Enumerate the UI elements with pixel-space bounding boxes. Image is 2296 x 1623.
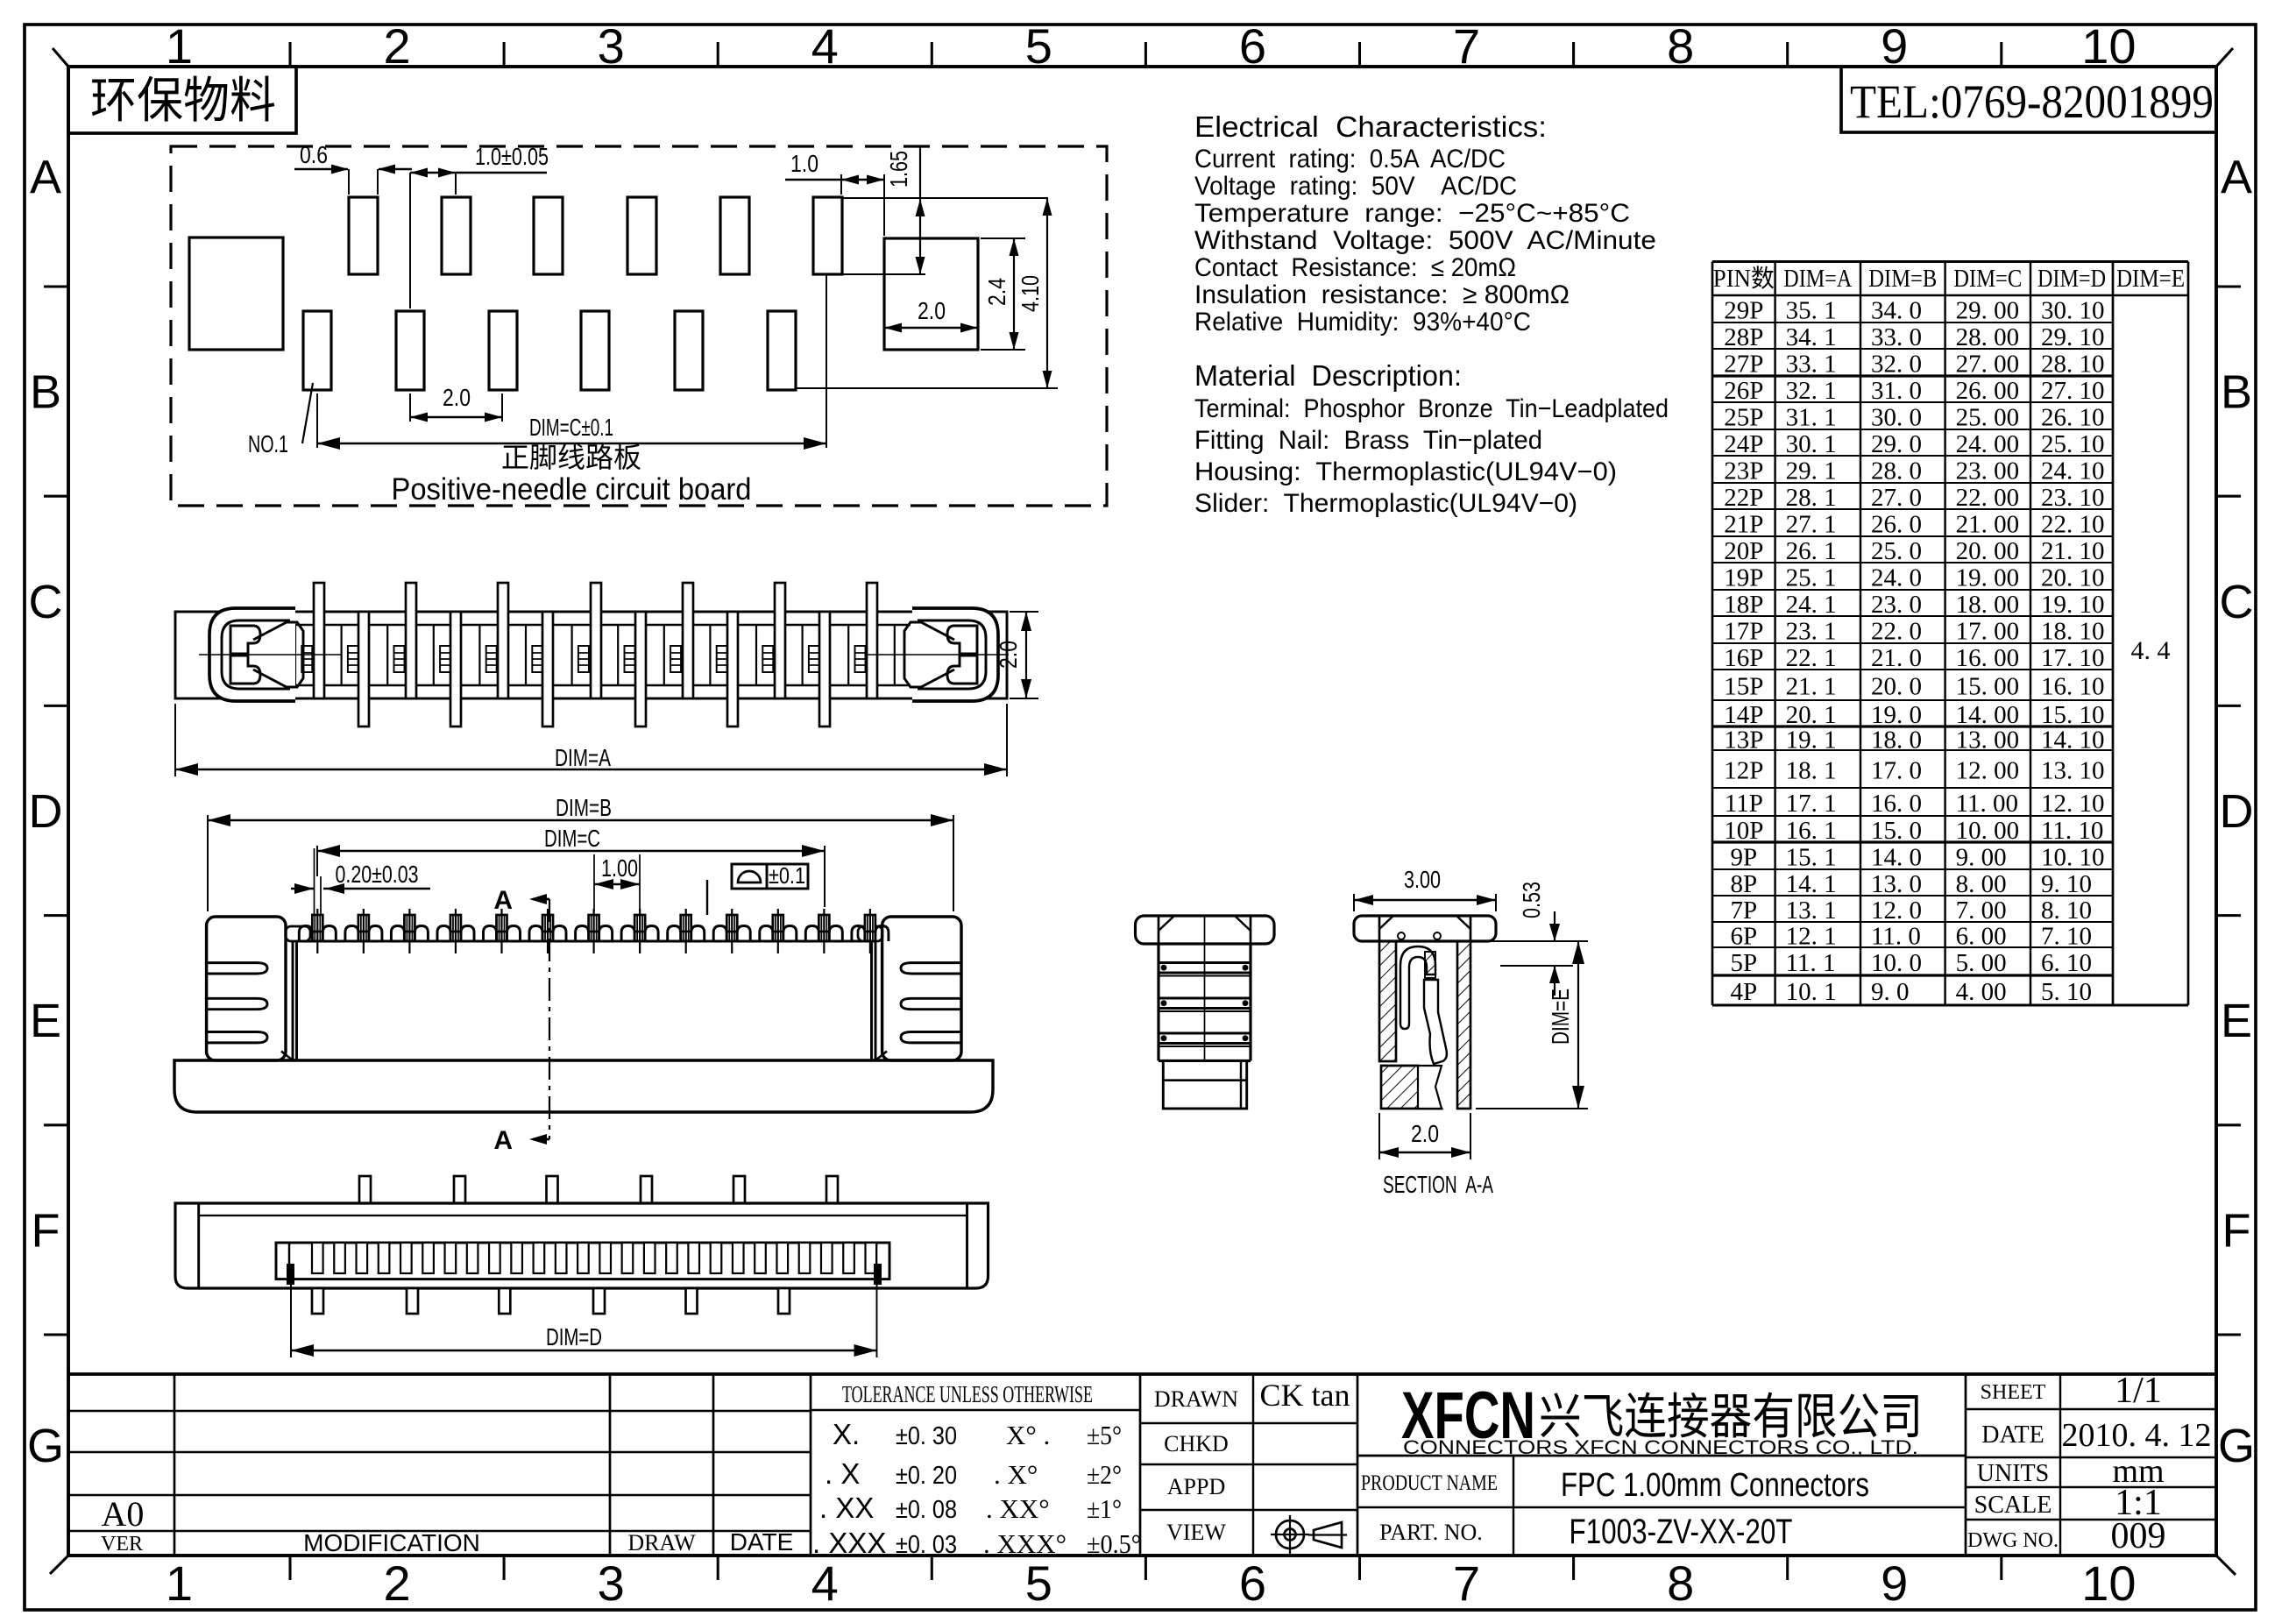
svg-text:E: E — [2221, 995, 2252, 1047]
svg-text:9P: 9P — [1730, 844, 1757, 872]
svg-text:. XXX°: . XXX° — [983, 1528, 1067, 1559]
svg-text:12. 00: 12. 00 — [1956, 757, 2020, 785]
svg-text:Terminal: Phosphor Bronze T: Terminal: Phosphor Bronze Tin−Leadplated — [1194, 394, 1669, 423]
svg-text:33. 0: 33. 0 — [1871, 323, 1922, 351]
svg-text:2010. 4. 12: 2010. 4. 12 — [2062, 1417, 2212, 1454]
svg-text:A0: A0 — [102, 1494, 145, 1534]
svg-text:D: D — [29, 785, 63, 838]
svg-text:DIM=A: DIM=A — [1783, 266, 1853, 293]
svg-text:Withstand Voltage: 500V AC/: Withstand Voltage: 500V AC/Minute — [1194, 226, 1656, 255]
svg-text:17. 10: 17. 10 — [2041, 644, 2105, 672]
svg-text:22. 00: 22. 00 — [1956, 484, 2020, 512]
svg-text:18. 10: 18. 10 — [2041, 618, 2105, 646]
svg-text:B: B — [2221, 366, 2252, 419]
svg-text:12P: 12P — [1724, 757, 1763, 785]
svg-text:X° .: X° . — [1006, 1420, 1050, 1450]
svg-text:9. 00: 9. 00 — [1956, 844, 2007, 872]
svg-text:009: 009 — [2111, 1516, 2166, 1556]
svg-text:22P: 22P — [1724, 484, 1763, 512]
svg-text:6: 6 — [1239, 1556, 1266, 1611]
svg-text:A: A — [30, 152, 61, 204]
svg-text:APPD: APPD — [1167, 1474, 1225, 1499]
svg-text:DIM=C: DIM=C — [544, 825, 600, 852]
svg-text:CONNECTORS XFCN CONNECTORS CO.: CONNECTORS XFCN CONNECTORS CO., LTD. — [1403, 1436, 1918, 1458]
svg-text:32. 0: 32. 0 — [1871, 351, 1922, 379]
svg-text:3: 3 — [598, 18, 625, 74]
svg-text:C: C — [2220, 576, 2254, 628]
svg-text:10P: 10P — [1724, 817, 1763, 845]
svg-text:18. 0: 18. 0 — [1871, 726, 1922, 755]
svg-text:24. 10: 24. 10 — [2041, 457, 2105, 485]
svg-text:35. 1: 35. 1 — [1786, 297, 1837, 325]
svg-text:Material Description:: Material Description: — [1194, 359, 1462, 392]
svg-text:正脚线路板: 正脚线路板 — [501, 442, 641, 473]
svg-text:7. 10: 7. 10 — [2041, 923, 2092, 951]
svg-text:5P: 5P — [1730, 949, 1757, 977]
svg-text:4. 4: 4. 4 — [2131, 636, 2171, 665]
svg-text:Housing: Thermoplastic(UL94V−: Housing: Thermoplastic(UL94V−0) — [1194, 457, 1617, 486]
svg-text:19. 10: 19. 10 — [2041, 591, 2105, 619]
svg-text:23. 1: 23. 1 — [1786, 618, 1837, 646]
svg-text:. XXX: . XXX — [812, 1527, 886, 1559]
svg-text:21. 1: 21. 1 — [1786, 673, 1837, 701]
svg-text:1: 1 — [166, 1556, 193, 1611]
svg-text:16. 1: 16. 1 — [1786, 817, 1837, 845]
svg-text:UNITS: UNITS — [1977, 1460, 2049, 1487]
svg-text:1.0: 1.0 — [790, 150, 818, 177]
svg-text:18P: 18P — [1724, 591, 1763, 619]
svg-text:A: A — [2221, 152, 2252, 204]
svg-text:29. 10: 29. 10 — [2041, 323, 2105, 351]
svg-text:25. 10: 25. 10 — [2041, 430, 2105, 458]
svg-text:DIM=D: DIM=D — [2037, 266, 2106, 293]
svg-text:Fitting Nail: Brass Tin−pla: Fitting Nail: Brass Tin−plated — [1194, 426, 1542, 455]
svg-text:6P: 6P — [1730, 923, 1757, 951]
svg-text:10. 10: 10. 10 — [2041, 844, 2105, 872]
svg-text:0.53: 0.53 — [1518, 882, 1545, 918]
svg-text:Insulation resistance: ≥ 800: Insulation resistance: ≥ 800mΩ — [1194, 280, 1570, 309]
svg-text:1.65: 1.65 — [885, 151, 912, 188]
svg-text:2.4: 2.4 — [983, 278, 1010, 306]
svg-text:2.0: 2.0 — [1411, 1120, 1439, 1147]
svg-text:Positive-needle circuit board: Positive-needle circuit board — [392, 472, 752, 507]
svg-text:8: 8 — [1667, 1556, 1694, 1611]
svg-text:14P: 14P — [1724, 701, 1763, 729]
svg-text:28. 10: 28. 10 — [2041, 351, 2105, 379]
svg-text:F: F — [2222, 1204, 2251, 1257]
svg-text:2.0: 2.0 — [443, 384, 471, 411]
svg-text:E: E — [30, 995, 61, 1047]
svg-text:11. 0: 11. 0 — [1871, 923, 1921, 951]
svg-text:Slider: Thermoplastic(UL94V−0: Slider: Thermoplastic(UL94V−0) — [1194, 489, 1577, 518]
svg-text:26. 0: 26. 0 — [1871, 511, 1922, 539]
svg-text:27. 10: 27. 10 — [2041, 377, 2105, 405]
svg-text:DIM=E: DIM=E — [1547, 989, 1574, 1045]
svg-text:19. 0: 19. 0 — [1871, 701, 1922, 729]
svg-text:24. 00: 24. 00 — [1956, 430, 2020, 458]
svg-text:17. 00: 17. 00 — [1956, 618, 2020, 646]
svg-text:13P: 13P — [1724, 726, 1763, 755]
svg-text:D: D — [2220, 785, 2254, 838]
svg-text:2.0: 2.0 — [995, 641, 1022, 669]
svg-text:VIEW: VIEW — [1166, 1520, 1226, 1545]
svg-text:21. 0: 21. 0 — [1871, 644, 1922, 672]
svg-text:6. 10: 6. 10 — [2041, 949, 2092, 977]
svg-text:5. 10: 5. 10 — [2041, 978, 2092, 1006]
svg-text:24P: 24P — [1724, 430, 1763, 458]
svg-text:21. 00: 21. 00 — [1956, 511, 2020, 539]
svg-text:4: 4 — [811, 18, 839, 74]
svg-text:1.00: 1.00 — [601, 854, 638, 882]
svg-text:Temperature range: −25°C~+85: Temperature range: −25°C~+85°C — [1194, 199, 1630, 228]
svg-text:±0. 20: ±0. 20 — [896, 1462, 957, 1490]
svg-text:X.: X. — [833, 1418, 860, 1450]
svg-text:VER: VER — [101, 1533, 143, 1556]
svg-text:DWG NO.: DWG NO. — [1967, 1529, 2059, 1552]
svg-text:30. 1: 30. 1 — [1786, 430, 1837, 458]
svg-text:19. 00: 19. 00 — [1956, 564, 2020, 592]
svg-text:15. 00: 15. 00 — [1956, 673, 2020, 701]
svg-text:10. 00: 10. 00 — [1956, 817, 2020, 845]
svg-text:12. 0: 12. 0 — [1871, 897, 1922, 925]
svg-text:SCALE: SCALE — [1974, 1492, 2052, 1519]
svg-text:10: 10 — [2081, 1556, 2136, 1611]
svg-text:16. 00: 16. 00 — [1956, 644, 2020, 672]
svg-text:7: 7 — [1453, 18, 1480, 74]
svg-text:. XX°: . XX° — [986, 1493, 1050, 1524]
svg-text:9. 10: 9. 10 — [2041, 870, 2092, 898]
svg-text:PART. NO.: PART. NO. — [1379, 1520, 1483, 1545]
svg-text:DATE: DATE — [1981, 1421, 2044, 1449]
svg-text:17. 1: 17. 1 — [1786, 790, 1837, 818]
svg-text:21. 10: 21. 10 — [2041, 537, 2105, 565]
svg-text:F: F — [32, 1204, 60, 1257]
svg-text:15. 10: 15. 10 — [2041, 701, 2105, 729]
svg-text:4: 4 — [811, 1556, 839, 1611]
svg-text:29P: 29P — [1724, 297, 1763, 325]
svg-text:DATE: DATE — [730, 1528, 794, 1556]
svg-text:1/1: 1/1 — [2115, 1371, 2162, 1411]
svg-text:18. 00: 18. 00 — [1956, 591, 2020, 619]
svg-text:10. 1: 10. 1 — [1786, 978, 1837, 1006]
svg-text:G: G — [2218, 1420, 2255, 1472]
svg-text:5. 00: 5. 00 — [1956, 949, 2007, 977]
svg-text:±0. 30: ±0. 30 — [896, 1422, 957, 1450]
svg-text:DRAWN: DRAWN — [1154, 1386, 1238, 1412]
svg-text:2.0: 2.0 — [918, 297, 946, 324]
svg-text:14. 10: 14. 10 — [2041, 726, 2105, 755]
svg-text:DRAW: DRAW — [627, 1530, 696, 1556]
svg-text:25P: 25P — [1724, 404, 1763, 432]
svg-text:15. 0: 15. 0 — [1871, 817, 1922, 845]
svg-text:27. 1: 27. 1 — [1786, 511, 1837, 539]
svg-text:26. 10: 26. 10 — [2041, 404, 2105, 432]
svg-text:CK tan: CK tan — [1260, 1378, 1350, 1413]
svg-text:22. 0: 22. 0 — [1871, 618, 1922, 646]
svg-text:DIM=D: DIM=D — [546, 1323, 602, 1350]
svg-text:17P: 17P — [1724, 618, 1763, 646]
svg-text:32. 1: 32. 1 — [1786, 377, 1837, 405]
svg-text:23. 00: 23. 00 — [1956, 457, 2020, 485]
svg-text:14. 00: 14. 00 — [1956, 701, 2020, 729]
svg-text:23. 10: 23. 10 — [2041, 484, 2105, 512]
svg-text:11. 10: 11. 10 — [2041, 817, 2103, 845]
svg-text:13. 1: 13. 1 — [1786, 897, 1837, 925]
svg-text:20P: 20P — [1724, 537, 1763, 565]
svg-text:13. 00: 13. 00 — [1956, 726, 2020, 755]
svg-text:PRODUCT NAME: PRODUCT NAME — [1361, 1471, 1498, 1495]
svg-text:1.0±0.05: 1.0±0.05 — [475, 143, 549, 170]
svg-text:31. 0: 31. 0 — [1871, 377, 1922, 405]
svg-text:±1°: ±1° — [1087, 1493, 1122, 1524]
svg-text:23P: 23P — [1724, 457, 1763, 485]
svg-text:25. 00: 25. 00 — [1956, 404, 2020, 432]
svg-text:22. 10: 22. 10 — [2041, 511, 2105, 539]
svg-text:4P: 4P — [1730, 978, 1757, 1006]
svg-text:DIM=C: DIM=C — [1953, 266, 2022, 293]
svg-text:12. 10: 12. 10 — [2041, 790, 2105, 818]
svg-text:11. 1: 11. 1 — [1786, 949, 1836, 977]
svg-text:27. 00: 27. 00 — [1956, 351, 2020, 379]
svg-text:8P: 8P — [1730, 870, 1757, 898]
svg-text:5: 5 — [1025, 18, 1052, 74]
svg-text:±0.1: ±0.1 — [769, 862, 805, 889]
svg-text:DIM=B: DIM=B — [556, 794, 612, 821]
svg-text:7P: 7P — [1730, 897, 1757, 925]
svg-text:25. 1: 25. 1 — [1786, 564, 1837, 592]
svg-text:A: A — [493, 1126, 513, 1155]
svg-text:DIM=C±0.1: DIM=C±0.1 — [529, 414, 613, 441]
svg-text:14. 0: 14. 0 — [1871, 844, 1922, 872]
svg-text:23. 0: 23. 0 — [1871, 591, 1922, 619]
svg-text:27. 0: 27. 0 — [1871, 484, 1922, 512]
svg-text:29. 1: 29. 1 — [1786, 457, 1837, 485]
svg-text:17. 0: 17. 0 — [1871, 757, 1922, 785]
svg-text:20. 10: 20. 10 — [2041, 564, 2105, 592]
svg-text:28P: 28P — [1724, 323, 1763, 351]
svg-text:19. 1: 19. 1 — [1786, 726, 1837, 755]
svg-text:MODIFICATION: MODIFICATION — [303, 1529, 480, 1556]
svg-text:28. 0: 28. 0 — [1871, 457, 1922, 485]
svg-text:25. 0: 25. 0 — [1871, 537, 1922, 565]
svg-text:TEL:0769-82001899: TEL:0769-82001899 — [1850, 75, 2214, 128]
svg-text:8. 10: 8. 10 — [2041, 897, 2092, 925]
svg-text:28. 00: 28. 00 — [1956, 323, 2020, 351]
svg-text:FPC 1.00mm Connectors: FPC 1.00mm Connectors — [1561, 1467, 1869, 1504]
svg-text:30. 0: 30. 0 — [1871, 404, 1922, 432]
svg-text:11. 00: 11. 00 — [1956, 790, 2018, 818]
svg-text:4.10: 4.10 — [1017, 275, 1044, 312]
svg-text:31. 1: 31. 1 — [1786, 404, 1837, 432]
svg-text:DIM=A: DIM=A — [555, 744, 611, 771]
svg-text:15P: 15P — [1724, 673, 1763, 701]
svg-text:33. 1: 33. 1 — [1786, 351, 1837, 379]
svg-text:29. 0: 29. 0 — [1871, 430, 1922, 458]
svg-text:11P: 11P — [1725, 790, 1763, 818]
svg-text:C: C — [29, 576, 63, 628]
svg-text:15. 1: 15. 1 — [1786, 844, 1837, 872]
svg-text:29. 00: 29. 00 — [1956, 297, 2020, 325]
svg-text:22. 1: 22. 1 — [1786, 644, 1837, 672]
svg-text:19P: 19P — [1724, 564, 1763, 592]
svg-text:26. 1: 26. 1 — [1786, 537, 1837, 565]
svg-text:26. 00: 26. 00 — [1956, 377, 2020, 405]
svg-text:24. 1: 24. 1 — [1786, 591, 1837, 619]
svg-text:20. 00: 20. 00 — [1956, 537, 2020, 565]
svg-text:Voltage rating: 50V AC/DC: Voltage rating: 50V AC/DC — [1194, 172, 1517, 201]
svg-text:±0.5°: ±0.5° — [1087, 1528, 1141, 1559]
svg-text:2: 2 — [383, 1556, 410, 1611]
svg-text:16. 0: 16. 0 — [1871, 790, 1922, 818]
svg-text:13. 0: 13. 0 — [1871, 870, 1922, 898]
svg-text:±0. 03: ±0. 03 — [896, 1531, 957, 1559]
svg-text:2: 2 — [383, 18, 410, 74]
svg-text:PIN数: PIN数 — [1713, 265, 1775, 293]
svg-text:F1003-ZV-XX-20T: F1003-ZV-XX-20T — [1570, 1513, 1793, 1551]
svg-text:3.00: 3.00 — [1404, 866, 1441, 893]
svg-text:8. 00: 8. 00 — [1956, 870, 2007, 898]
svg-text:TOLERANCE UNLESS OTHERWISE: TOLERANCE UNLESS OTHERWISE — [842, 1381, 1093, 1407]
svg-text:28. 1: 28. 1 — [1786, 484, 1837, 512]
svg-text:Current rating: 0.5A AC/DC: Current rating: 0.5A AC/DC — [1194, 145, 1506, 174]
svg-text:±0. 08: ±0. 08 — [896, 1496, 957, 1524]
svg-text:NO.1: NO.1 — [248, 430, 288, 457]
svg-text:10. 0: 10. 0 — [1871, 949, 1922, 977]
svg-text:34. 1: 34. 1 — [1786, 323, 1837, 351]
svg-text:9: 9 — [1881, 1556, 1908, 1611]
svg-text:5: 5 — [1025, 1556, 1052, 1611]
svg-text:A: A — [493, 886, 513, 915]
svg-text:6: 6 — [1239, 18, 1266, 74]
svg-text:20. 0: 20. 0 — [1871, 673, 1922, 701]
svg-text:3: 3 — [598, 1556, 625, 1611]
svg-text:8: 8 — [1667, 18, 1694, 74]
svg-text:Contact Resistance: ≤ 20mΩ: Contact Resistance: ≤ 20mΩ — [1194, 253, 1516, 282]
svg-text:6. 00: 6. 00 — [1956, 923, 2007, 951]
svg-text:Relative Humidity: 93%+40°C: Relative Humidity: 93%+40°C — [1194, 308, 1531, 337]
svg-text:12. 1: 12. 1 — [1786, 923, 1837, 951]
svg-text:18. 1: 18. 1 — [1786, 757, 1837, 785]
svg-text:DIM=B: DIM=B — [1868, 266, 1937, 293]
svg-text:DIM=E: DIM=E — [2116, 266, 2185, 293]
svg-text:16P: 16P — [1724, 644, 1763, 672]
svg-text:G: G — [27, 1420, 64, 1472]
svg-text:30. 10: 30. 10 — [2041, 297, 2105, 325]
svg-text:. XX: . XX — [819, 1492, 874, 1524]
svg-text:24. 0: 24. 0 — [1871, 564, 1922, 592]
svg-text:34. 0: 34. 0 — [1871, 297, 1922, 325]
svg-text:±5°: ±5° — [1087, 1420, 1122, 1450]
svg-text:7: 7 — [1453, 1556, 1480, 1611]
svg-text:9. 0: 9. 0 — [1871, 978, 1910, 1006]
svg-text:SHEET: SHEET — [1981, 1381, 2046, 1404]
svg-text:B: B — [30, 366, 61, 419]
svg-text:环保物料: 环保物料 — [90, 74, 276, 129]
svg-text:0.20±0.03: 0.20±0.03 — [336, 861, 419, 888]
svg-text:13. 10: 13. 10 — [2041, 757, 2105, 785]
svg-text:. X°: . X° — [994, 1459, 1038, 1490]
svg-text:27P: 27P — [1724, 351, 1763, 379]
svg-text:26P: 26P — [1724, 377, 1763, 405]
svg-text:CHKD: CHKD — [1164, 1431, 1229, 1456]
svg-text:21P: 21P — [1724, 511, 1763, 539]
svg-text:. X: . X — [825, 1457, 860, 1490]
svg-text:4. 00: 4. 00 — [1956, 978, 2007, 1006]
svg-text:16. 10: 16. 10 — [2041, 673, 2105, 701]
svg-text:SECTION A-A: SECTION A-A — [1383, 1171, 1493, 1198]
svg-text:Electrical Characteristics:: Electrical Characteristics: — [1194, 110, 1547, 143]
svg-text:14. 1: 14. 1 — [1786, 870, 1837, 898]
svg-text:0.6: 0.6 — [300, 141, 328, 168]
svg-text:±2°: ±2° — [1087, 1459, 1122, 1490]
svg-text:7. 00: 7. 00 — [1956, 897, 2007, 925]
svg-text:20. 1: 20. 1 — [1786, 701, 1837, 729]
